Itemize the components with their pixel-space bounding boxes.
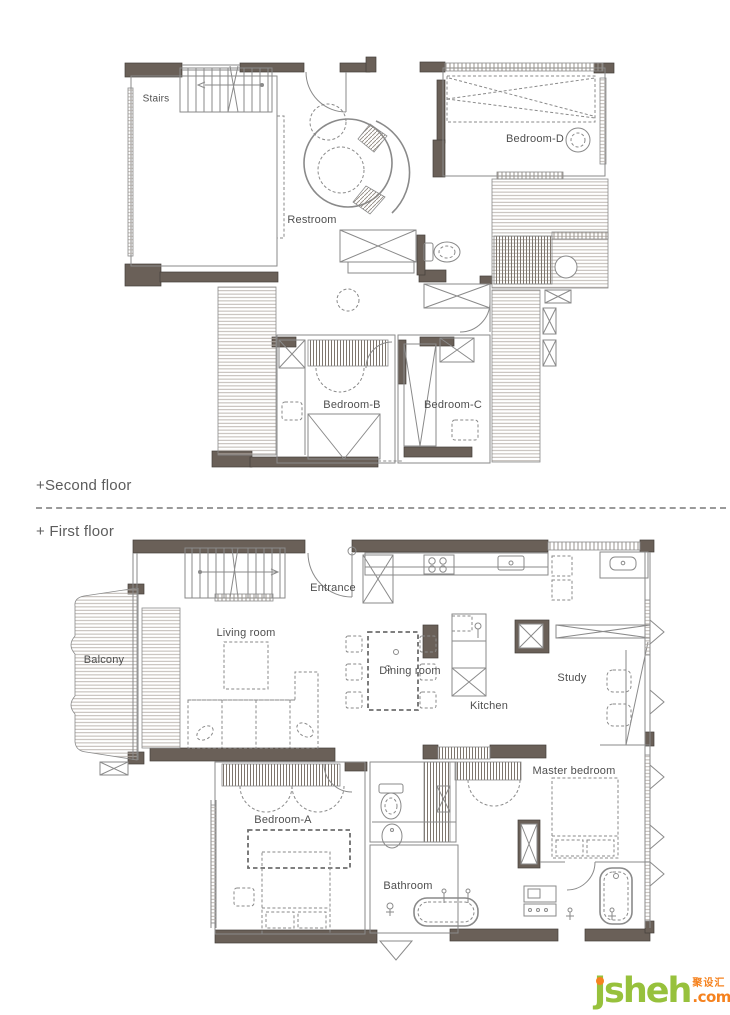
floor-plan-canvas: Stairs Restroom Bedroom-D Bedroom-B Bedr… xyxy=(0,0,730,1015)
first-floor-plan xyxy=(71,540,664,960)
room-label-bedroom-d: Bedroom-D xyxy=(506,133,564,145)
floor-divider-line xyxy=(36,507,726,509)
room-label-stairs: Stairs xyxy=(143,94,170,105)
jsheh-logo[interactable]: jsheh 聚设汇 .com xyxy=(594,972,730,1010)
room-label-dining-room: Dining room xyxy=(379,665,441,677)
room-label-master-bedroom: Master bedroom xyxy=(533,765,616,777)
room-label-study: Study xyxy=(557,672,586,684)
room-label-balcony: Balcony xyxy=(84,654,125,666)
logo-dot xyxy=(596,977,604,985)
room-label-living-room: Living room xyxy=(216,627,275,639)
room-label-bedroom-a: Bedroom-A xyxy=(254,814,311,826)
room-label-restroom: Restroom xyxy=(287,214,336,226)
room-label-bathroom: Bathroom xyxy=(383,880,432,892)
logo-tld-text: .com xyxy=(692,989,730,1005)
room-label-bedroom-b: Bedroom-B xyxy=(323,399,380,411)
room-label-bedroom-c: Bedroom-C xyxy=(424,399,482,411)
room-label-entrance: Entrance xyxy=(310,582,356,594)
section-label-second-floor: +Second floor xyxy=(36,477,132,494)
section-label-first-floor: + First floor xyxy=(36,523,114,540)
room-label-kitchen: Kitchen xyxy=(470,700,508,712)
logo-brand-text: jsheh xyxy=(594,972,690,1010)
